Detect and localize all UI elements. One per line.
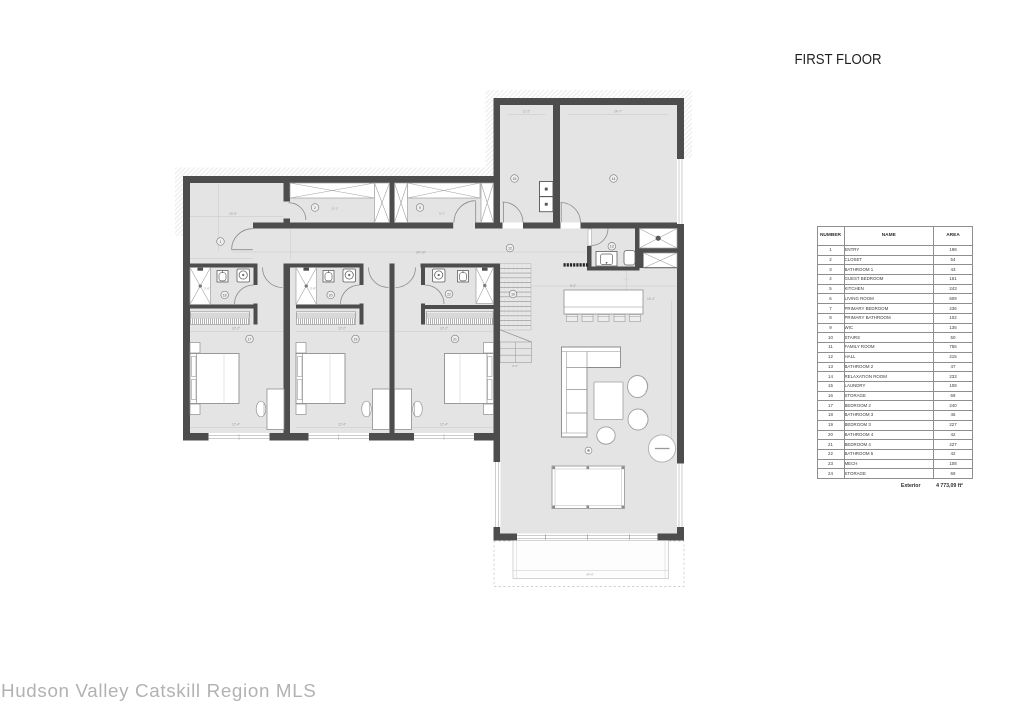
svg-text:16'-4": 16'-4" [647,297,655,301]
svg-text:19'-5": 19'-5" [229,212,237,216]
svg-text:12'-4": 12'-4" [338,423,346,427]
svg-text:15: 15 [513,177,517,181]
svg-text:21: 21 [453,337,457,341]
svg-text:12'-2": 12'-2" [440,327,448,331]
svg-text:5'-8": 5'-8" [310,286,316,290]
svg-text:FIRST FLOOR: FIRST FLOOR [795,51,882,68]
svg-text:11'-2": 11'-2" [523,110,531,114]
svg-text:12'-4": 12'-4" [440,423,448,427]
svg-text:2: 2 [314,206,316,210]
svg-text:9: 9 [419,206,421,210]
svg-text:18: 18 [223,293,227,297]
svg-text:3'-6": 3'-6" [512,364,518,368]
svg-text:22: 22 [447,292,451,296]
svg-text:12'-2": 12'-2" [338,327,346,331]
svg-text:17: 17 [248,337,252,341]
svg-text:1: 1 [220,240,222,244]
svg-text:34'-10": 34'-10" [416,250,426,254]
svg-text:20: 20 [329,293,333,297]
svg-text:13: 13 [610,245,614,249]
svg-text:12'-4": 12'-4" [232,423,240,427]
svg-text:10: 10 [511,292,515,296]
svg-text:12: 12 [508,246,512,250]
svg-text:14: 14 [612,177,616,181]
svg-text:19: 19 [354,337,358,341]
svg-text:5'-8": 5'-8" [204,286,210,290]
svg-text:11'-1": 11'-1" [331,207,338,211]
svg-text:24'-7": 24'-7" [614,110,622,114]
svg-text:9'-2": 9'-2" [439,212,445,216]
svg-text:34'-0": 34'-0" [586,573,594,577]
svg-text:12'-2": 12'-2" [232,327,240,331]
svg-text:8'-6": 8'-6" [570,284,576,288]
